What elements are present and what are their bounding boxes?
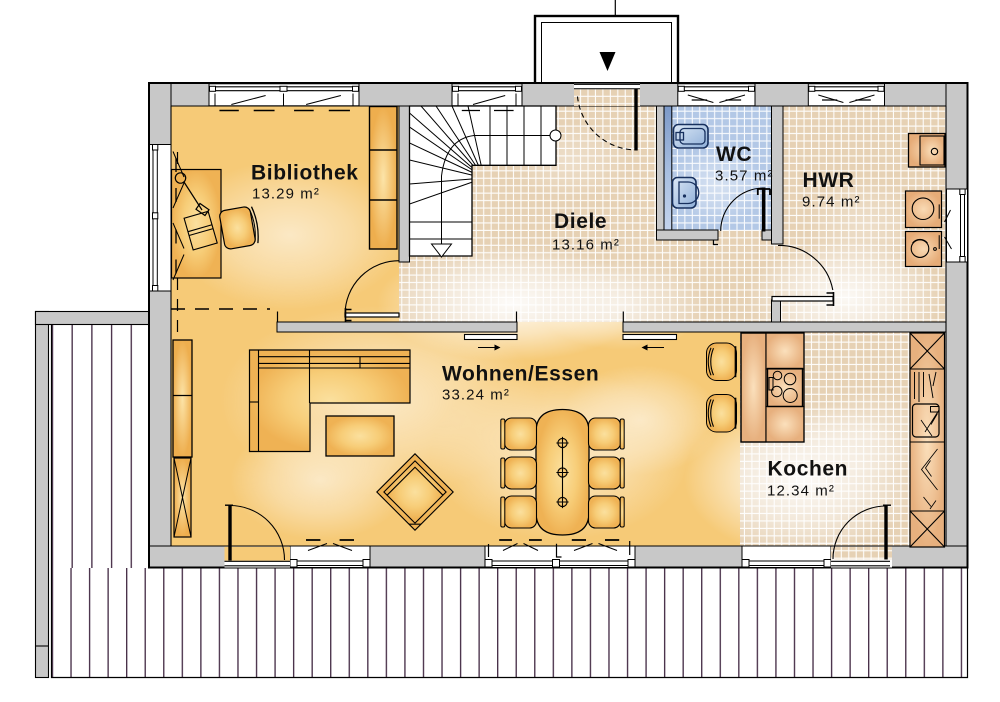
svg-text:Bibliothek: Bibliothek [251, 162, 359, 185]
svg-text:Kochen: Kochen [768, 458, 849, 481]
svg-text:Wohnen/Essen: Wohnen/Essen [442, 363, 599, 386]
svg-text:9.74 m²: 9.74 m² [802, 194, 861, 211]
svg-text:13.29 m²: 13.29 m² [252, 186, 320, 203]
svg-text:HWR: HWR [803, 169, 855, 192]
svg-text:Diele: Diele [554, 210, 607, 233]
svg-text:13.16 m²: 13.16 m² [552, 237, 620, 254]
svg-text:WC: WC [716, 143, 752, 166]
svg-text:3.57 m²: 3.57 m² [715, 168, 774, 185]
svg-text:33.24 m²: 33.24 m² [442, 387, 510, 404]
svg-text:12.34 m²: 12.34 m² [767, 483, 835, 500]
